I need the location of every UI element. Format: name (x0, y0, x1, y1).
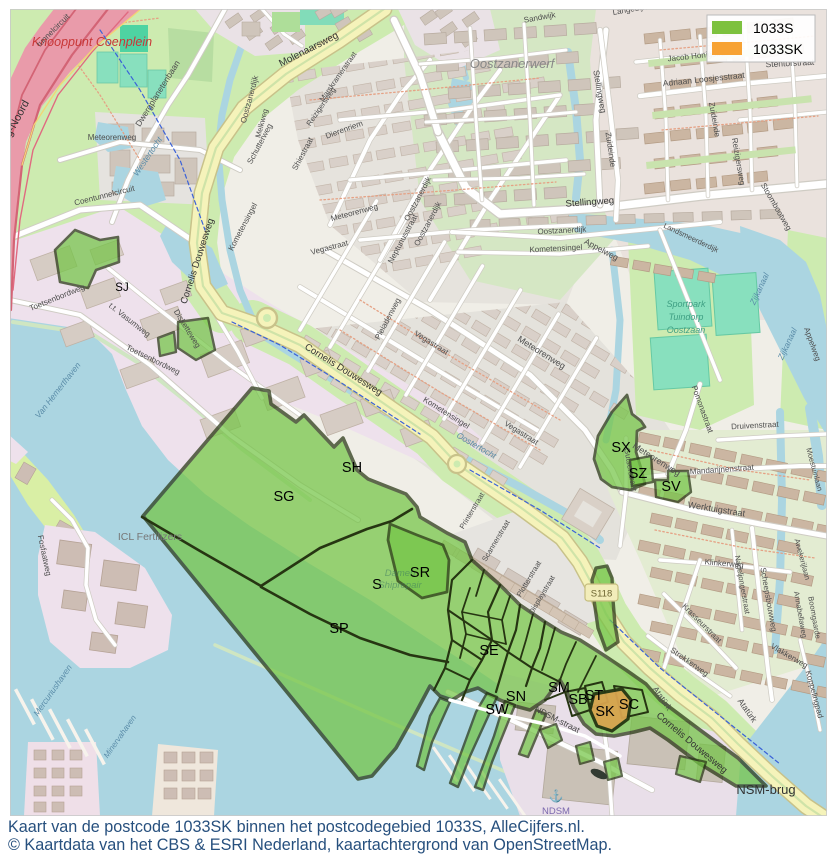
svg-text:Oostzaan: Oostzaan (667, 325, 706, 335)
svg-text:SC: SC (619, 697, 639, 713)
svg-text:SR: SR (410, 565, 430, 581)
svg-text:SV: SV (661, 479, 681, 495)
svg-text:Tuindorp: Tuindorp (669, 312, 704, 322)
svg-text:S118: S118 (591, 589, 612, 600)
svg-text:SJ: SJ (115, 282, 128, 294)
svg-text:S: S (372, 577, 382, 593)
svg-text:SE: SE (479, 643, 499, 659)
svg-text:SP: SP (329, 621, 348, 637)
svg-text:⚓: ⚓ (549, 789, 564, 803)
svg-text:ST: ST (585, 688, 604, 704)
svg-text:Meteorenweg: Meteorenweg (88, 133, 136, 142)
svg-text:Sportpark: Sportpark (666, 299, 706, 309)
svg-text:Oostzanerwerf: Oostzanerwerf (470, 56, 556, 71)
svg-text:1033SK: 1033SK (753, 41, 803, 57)
svg-text:ICL Fertilizers: ICL Fertilizers (118, 531, 182, 543)
svg-text:SK: SK (595, 704, 615, 720)
svg-text:SH: SH (342, 460, 362, 476)
svg-text:NSM-brug: NSM-brug (736, 782, 795, 797)
svg-text:1033S: 1033S (753, 20, 793, 36)
svg-text:SW: SW (485, 702, 509, 718)
svg-text:SN: SN (506, 689, 526, 705)
svg-text:© Kaartdata van het CBS & ESRI: © Kaartdata van het CBS & ESRI Nederland… (8, 836, 612, 854)
svg-text:Shiprepair: Shiprepair (378, 580, 422, 591)
svg-text:SZ: SZ (629, 466, 648, 482)
svg-text:SX: SX (611, 440, 631, 456)
svg-text:SM: SM (548, 680, 570, 696)
svg-text:SG: SG (274, 489, 295, 505)
svg-text:Kaart van de postcode 1033SK b: Kaart van de postcode 1033SK binnen het … (8, 818, 585, 836)
